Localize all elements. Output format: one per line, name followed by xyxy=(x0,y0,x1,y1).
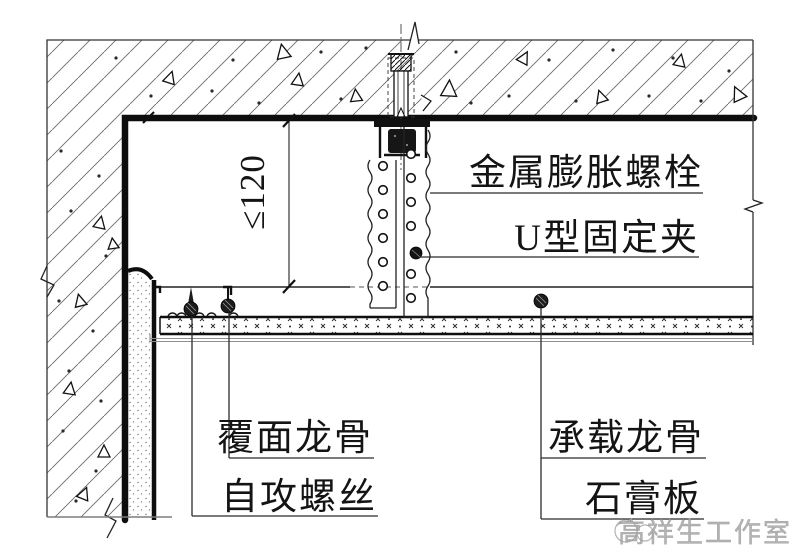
detail-canvas: ≤120 金属膨胀螺栓 U型固定夹 覆面龙骨 自攻螺丝 承载龙骨 石膏板 高祥生… xyxy=(0,0,798,559)
label-gypsum-board: 石膏板 xyxy=(585,478,702,520)
label-furring-channel: 覆面龙骨 xyxy=(217,418,373,459)
callout-texts: 金属膨胀螺栓 U型固定夹 覆面龙骨 自攻螺丝 承载龙骨 石膏板 xyxy=(217,152,704,520)
watermark: 高祥生工作室 xyxy=(615,518,792,548)
carrying-channel-fixing xyxy=(534,294,548,308)
right-strip-wavy-edge xyxy=(426,130,430,317)
gypsum-board xyxy=(150,317,753,342)
label-self-tapping-screw: 自攻螺丝 xyxy=(221,476,377,518)
watermark-text: 高祥生工作室 xyxy=(618,518,792,548)
furring-channel-section xyxy=(221,287,235,313)
self-tapping-screw-symbol xyxy=(184,287,198,316)
bolt-head xyxy=(391,54,411,71)
dimension-group: ≤120 xyxy=(143,112,295,293)
label-expansion-bolt: 金属膨胀螺栓 xyxy=(469,152,703,194)
label-carrying-channel: 承载龙骨 xyxy=(548,417,704,459)
hanger-holes xyxy=(379,150,416,303)
label-u-clip: U型固定夹 xyxy=(514,217,699,259)
board-core-hatch xyxy=(160,319,753,334)
wall-plaster-strip xyxy=(128,269,154,520)
u-clip-assembly xyxy=(374,119,430,158)
left-strip-wavy-edge xyxy=(368,160,372,308)
ceiling-detail-drawing: ≤120 金属膨胀螺栓 U型固定夹 覆面龙骨 自攻螺丝 承载龙骨 石膏板 高祥生… xyxy=(0,0,798,559)
dimension-text: ≤120 xyxy=(233,154,272,230)
bolt-sleeve xyxy=(394,71,408,117)
right-edge-break xyxy=(745,200,762,212)
clip-top-plate xyxy=(374,119,430,127)
plaster-stipple xyxy=(129,273,151,517)
